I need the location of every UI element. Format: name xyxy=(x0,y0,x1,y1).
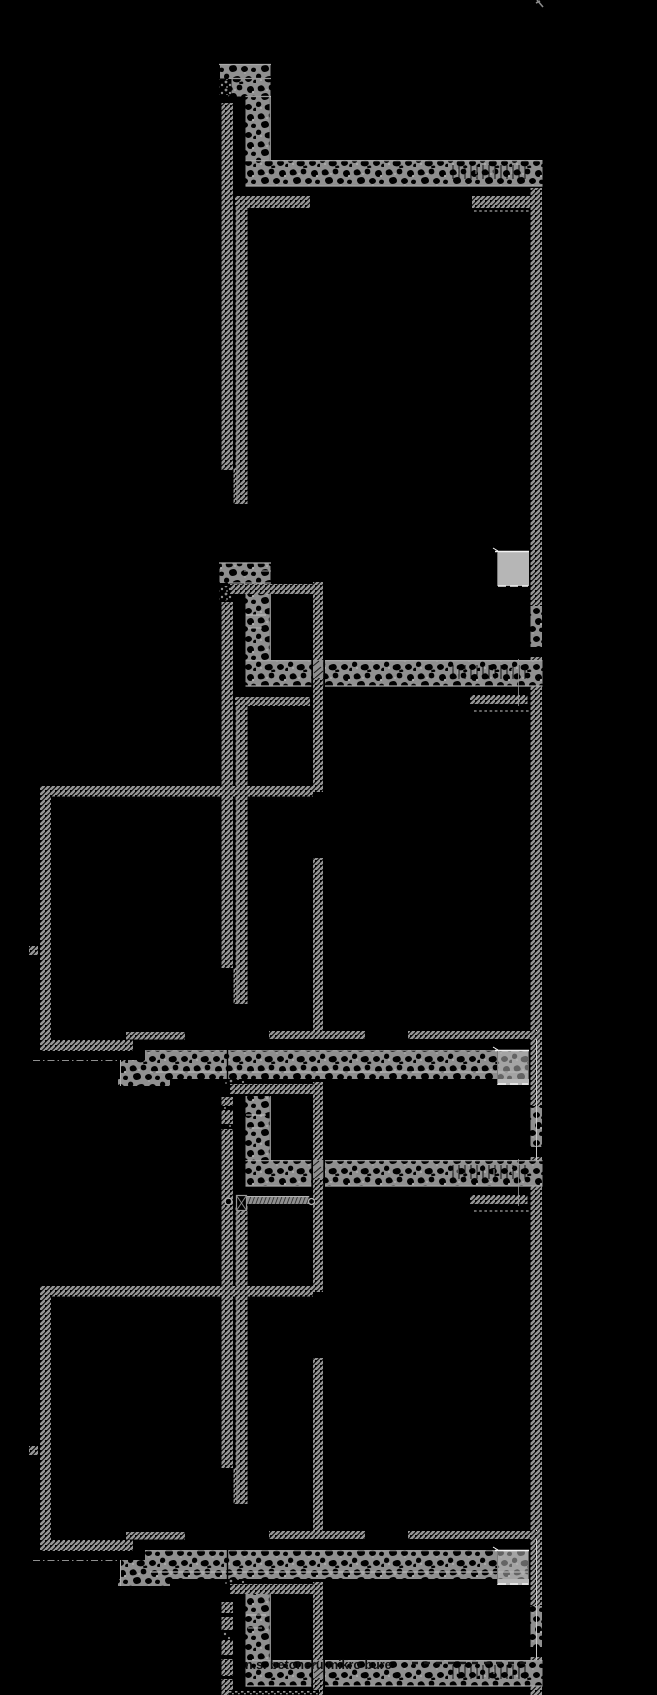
svg-text:n.s. betoneru mikro bure: n.s. betoneru mikro bure xyxy=(245,1658,392,1672)
